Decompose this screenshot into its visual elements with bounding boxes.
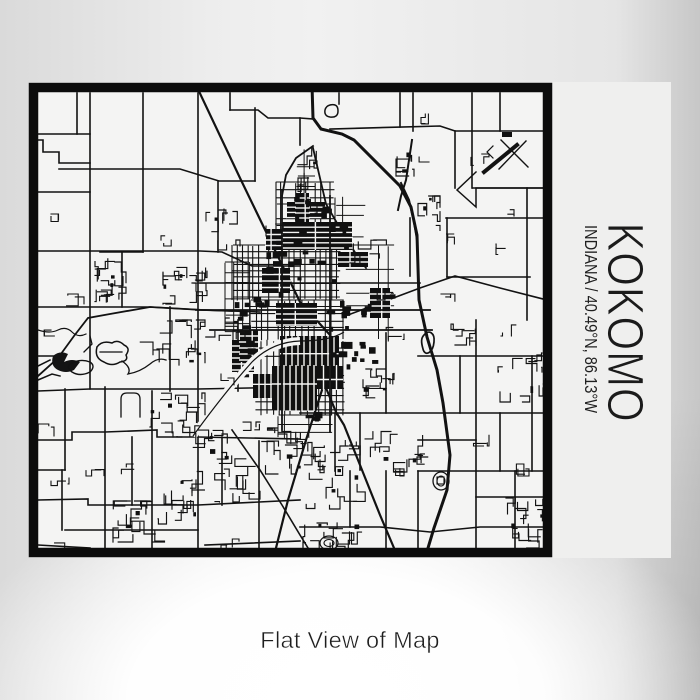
svg-text:KOKOMO: KOKOMO — [597, 223, 654, 423]
svg-text:INDIANA / 40.49°N, 86.13°W: INDIANA / 40.49°N, 86.13°W — [581, 225, 601, 413]
